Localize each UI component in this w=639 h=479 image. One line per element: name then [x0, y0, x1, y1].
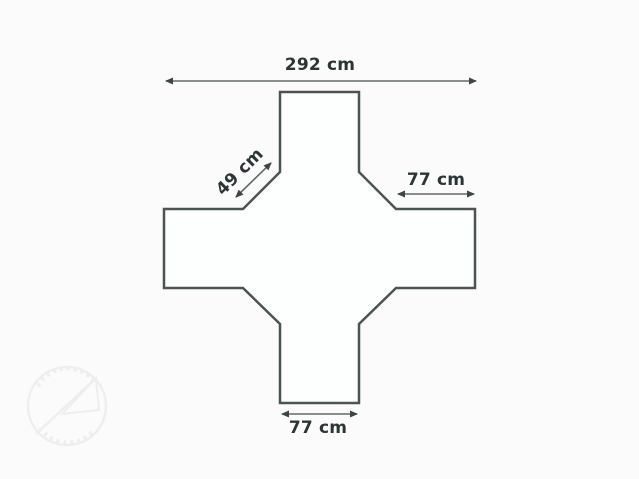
overall-width-dimension-label: 292 cm	[285, 55, 355, 75]
cross-shape-outline	[164, 92, 475, 403]
watermark-logo	[28, 367, 106, 445]
watermark-triangle	[62, 378, 99, 414]
bottom-arm-dimension-label: 77 cm	[289, 418, 347, 438]
right-arm-dimension-label: 77 cm	[407, 170, 465, 190]
diagram-page: 292 cm 49 cm 77 cm 77 cm	[0, 0, 639, 479]
